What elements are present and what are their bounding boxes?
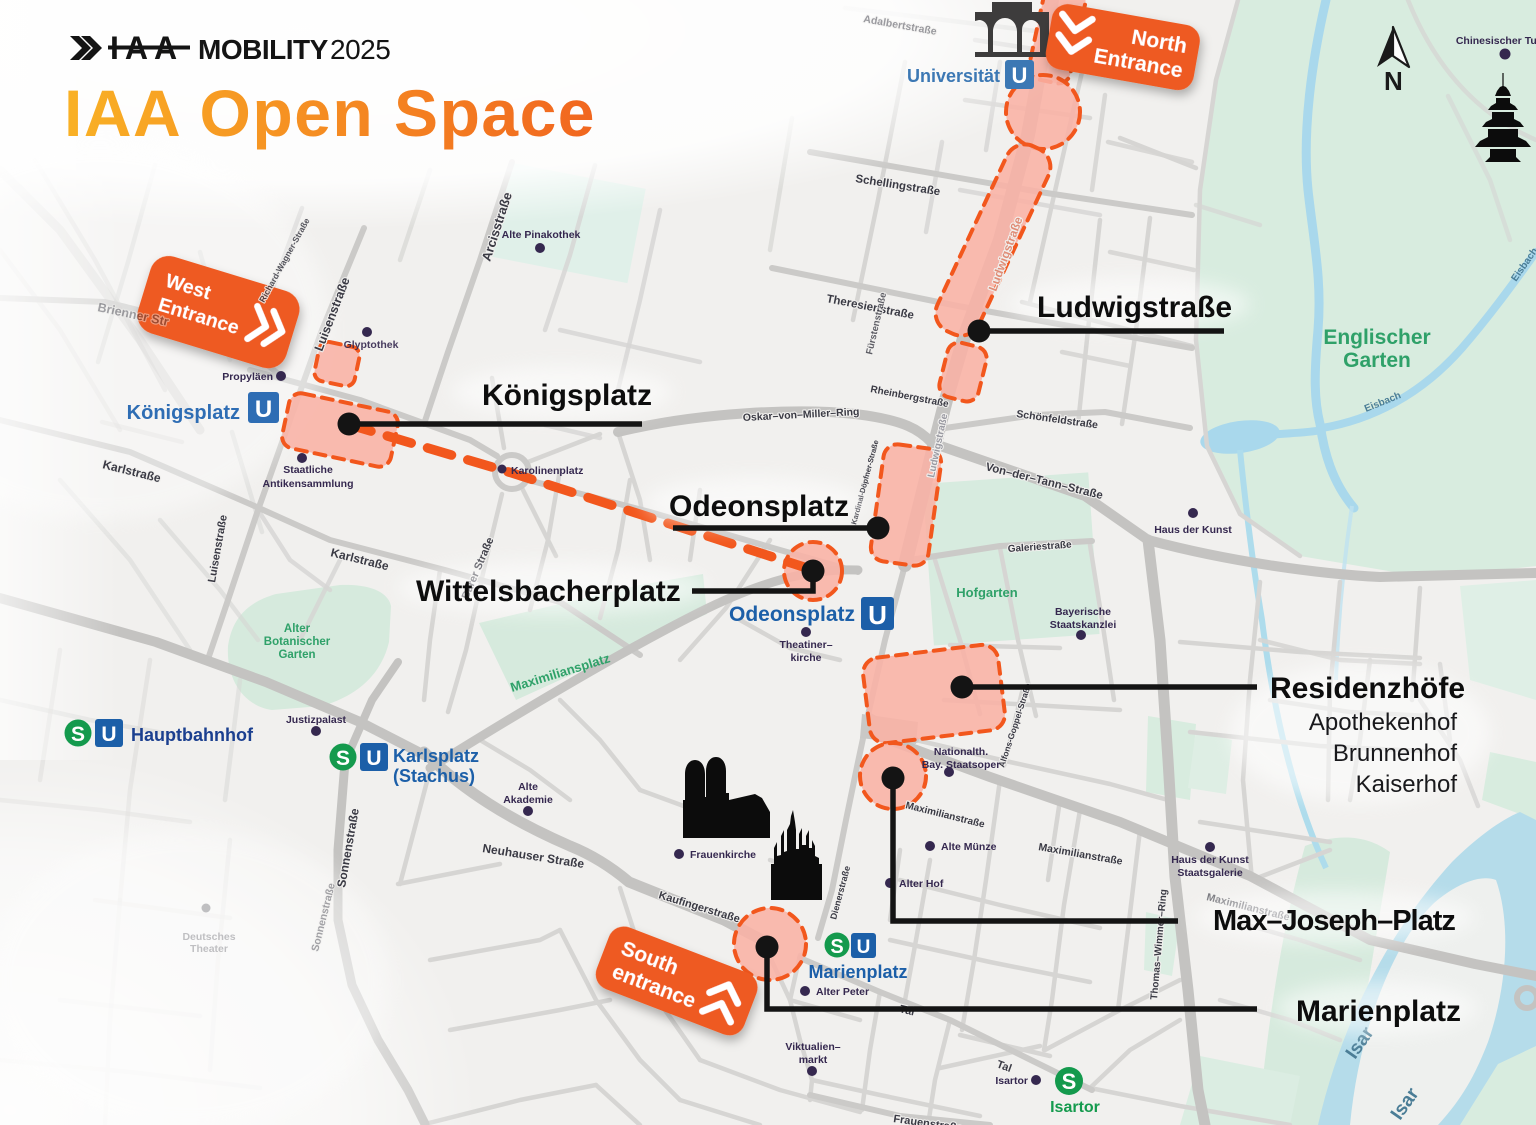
svg-text:Theater: Theater	[190, 943, 228, 955]
svg-text:Alter Hof: Alter Hof	[899, 878, 944, 890]
svg-text:Isartor: Isartor	[995, 1075, 1028, 1087]
svg-text:U: U	[255, 396, 272, 423]
svg-text:S: S	[336, 747, 350, 770]
svg-text:Staatliche: Staatliche	[283, 464, 333, 476]
svg-text:Odeonsplatz: Odeonsplatz	[729, 603, 855, 626]
svg-text:Alter Peter: Alter Peter	[816, 986, 869, 998]
svg-text:Garten: Garten	[278, 649, 315, 661]
svg-text:Residenzhöfe: Residenzhöfe	[1270, 672, 1465, 705]
svg-text:U: U	[868, 600, 887, 630]
svg-text:Ludwigstraße: Ludwigstraße	[1037, 291, 1232, 324]
svg-text:U: U	[1012, 63, 1028, 88]
svg-text:kirche: kirche	[791, 652, 822, 664]
svg-text:Alter: Alter	[284, 623, 311, 635]
svg-text:Marienplatz: Marienplatz	[808, 962, 907, 982]
svg-text:Chinesischer Turm: Chinesischer Turm	[1456, 35, 1536, 47]
svg-text:Karolinenplatz: Karolinenplatz	[511, 465, 583, 477]
svg-text:Hauptbahnhof: Hauptbahnhof	[131, 725, 254, 745]
svg-text:Haus der Kunst: Haus der Kunst	[1171, 854, 1249, 866]
svg-text:IAA Open Space: IAA Open Space	[64, 76, 596, 150]
svg-text:2025: 2025	[330, 34, 390, 65]
svg-text:Antikensammlung: Antikensammlung	[262, 478, 353, 490]
svg-text:Alte Münze: Alte Münze	[941, 841, 997, 853]
svg-text:markt: markt	[799, 1054, 828, 1066]
svg-text:S: S	[1062, 1069, 1077, 1094]
svg-text:Karlsplatz: Karlsplatz	[393, 746, 479, 766]
svg-text:Botanischer: Botanischer	[264, 636, 331, 648]
svg-text:Viktualien–: Viktualien–	[785, 1041, 840, 1053]
svg-text:MOBILITY: MOBILITY	[198, 34, 329, 65]
svg-text:U: U	[366, 747, 381, 770]
svg-text:U: U	[857, 937, 871, 958]
svg-text:Apothekenhof: Apothekenhof	[1309, 709, 1457, 736]
svg-text:Bay. Staatsoper: Bay. Staatsoper	[922, 759, 1001, 771]
svg-text:Hofgarten: Hofgarten	[956, 585, 1017, 600]
svg-text:Marienplatz: Marienplatz	[1296, 995, 1461, 1028]
svg-text:Haus der Kunst: Haus der Kunst	[1154, 524, 1232, 536]
svg-text:S: S	[830, 936, 843, 958]
svg-text:Justizpalast: Justizpalast	[286, 714, 347, 726]
svg-text:Theatiner–: Theatiner–	[779, 639, 832, 651]
svg-text:Universität: Universität	[907, 66, 1000, 86]
svg-text:Propyläen: Propyläen	[222, 371, 273, 383]
svg-text:Königsplatz: Königsplatz	[127, 402, 240, 424]
svg-text:U: U	[101, 723, 116, 746]
svg-text:Brunnenhof: Brunnenhof	[1333, 740, 1457, 767]
svg-text:(Stachus): (Stachus)	[393, 766, 475, 786]
svg-text:Alte Pinakothek: Alte Pinakothek	[502, 229, 581, 241]
svg-text:Staatskanzlei: Staatskanzlei	[1050, 619, 1117, 631]
svg-text:Nationalth.: Nationalth.	[934, 746, 988, 758]
svg-text:N: N	[1384, 66, 1403, 96]
svg-text:Isartor: Isartor	[1050, 1099, 1100, 1116]
svg-text:Odeonsplatz: Odeonsplatz	[669, 490, 849, 523]
svg-text:Bayerische: Bayerische	[1055, 606, 1111, 618]
svg-text:Frauenkirche: Frauenkirche	[690, 849, 756, 861]
svg-text:Max–Joseph–Platz: Max–Joseph–Platz	[1213, 905, 1455, 937]
svg-text:Glyptothek: Glyptothek	[344, 339, 399, 351]
svg-text:Alte: Alte	[518, 781, 538, 793]
svg-text:Staatsgalerie: Staatsgalerie	[1177, 867, 1243, 879]
svg-text:Englischer: Englischer	[1323, 326, 1430, 349]
svg-text:Kaiserhof: Kaiserhof	[1356, 771, 1458, 798]
svg-text:Deutsches: Deutsches	[182, 931, 235, 943]
svg-text:Garten: Garten	[1343, 349, 1411, 372]
svg-text:Akademie: Akademie	[503, 794, 553, 806]
svg-text:S: S	[71, 723, 85, 746]
svg-text:Königsplatz: Königsplatz	[482, 379, 652, 412]
svg-text:Wittelsbacherplatz: Wittelsbacherplatz	[416, 575, 681, 608]
